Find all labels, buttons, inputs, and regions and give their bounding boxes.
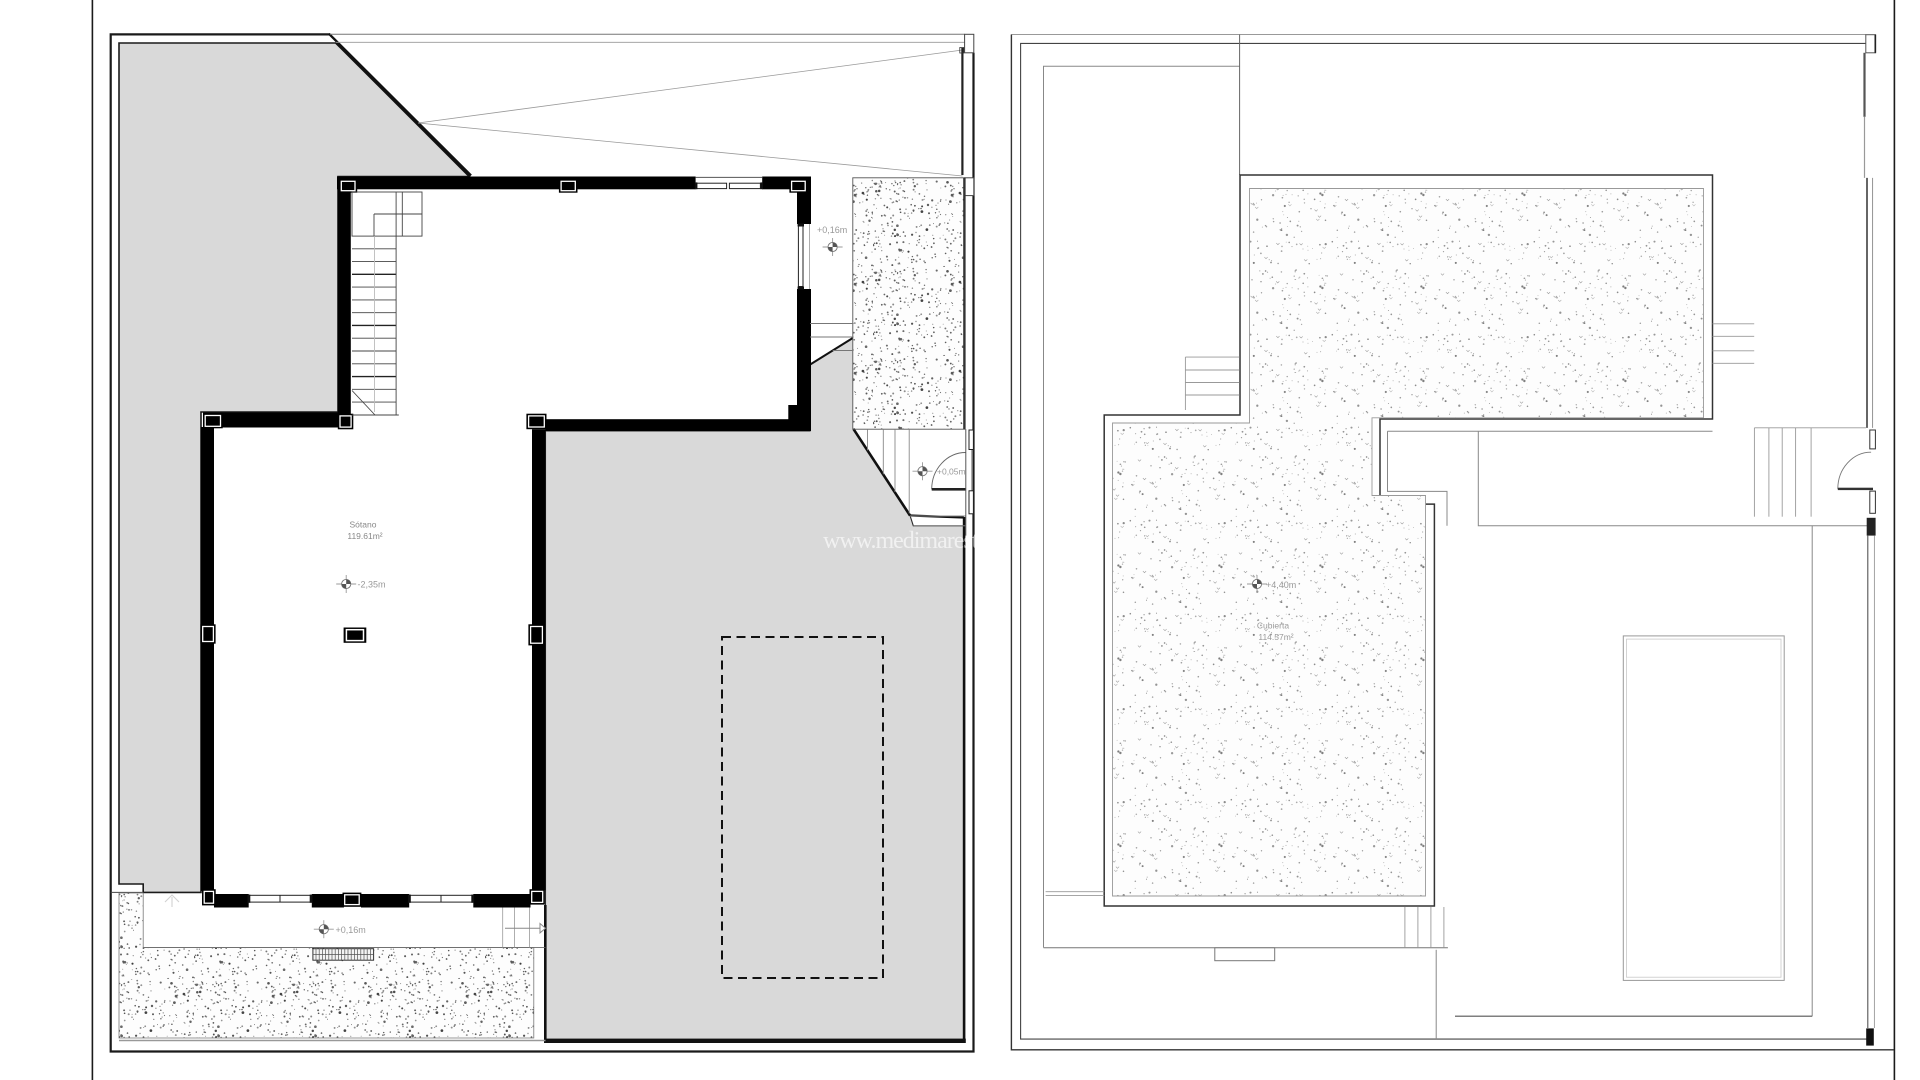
svg-text:-2,35m: -2,35m xyxy=(358,580,386,590)
svg-text:+0,16m: +0,16m xyxy=(336,925,366,935)
svg-text:+0,05m: +0,05m xyxy=(937,467,966,477)
svg-text:www.medimarestate.com: www.medimarestate.com xyxy=(823,528,1047,554)
svg-text:+0,16m: +0,16m xyxy=(817,225,847,235)
svg-text:Cubierta: Cubierta xyxy=(1257,621,1289,631)
svg-text:119.61m²: 119.61m² xyxy=(347,531,382,541)
svg-text:114.57m²: 114.57m² xyxy=(1258,632,1293,642)
svg-text:+4,40m: +4,40m xyxy=(1266,580,1296,590)
svg-text:Sótano: Sótano xyxy=(350,520,377,530)
